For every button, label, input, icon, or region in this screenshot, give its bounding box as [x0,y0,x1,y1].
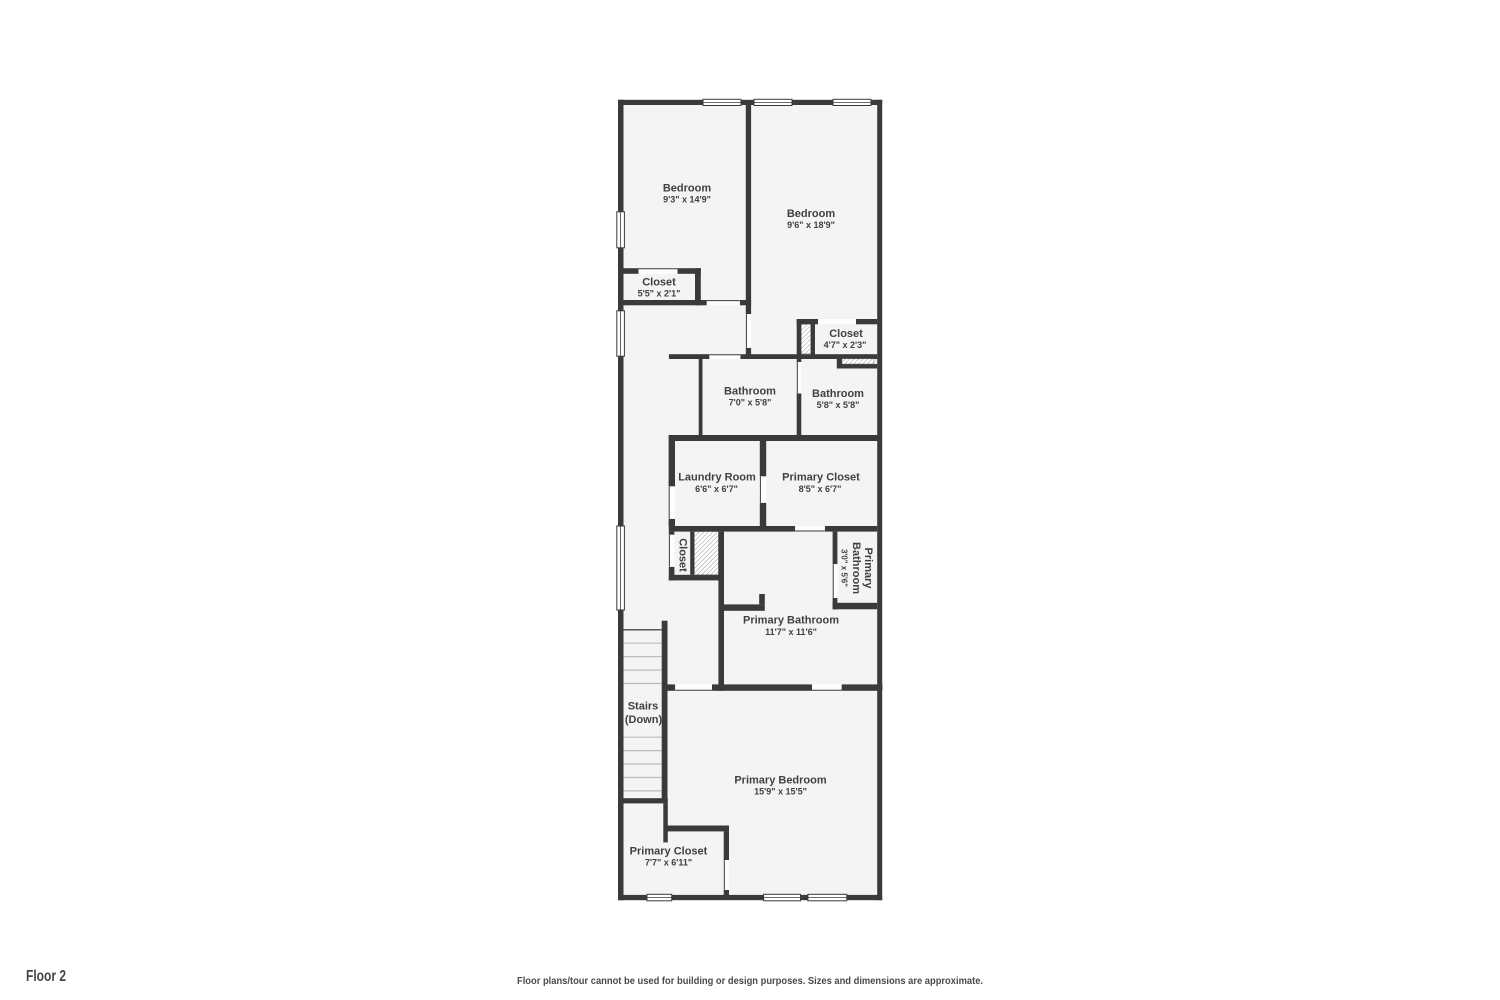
svg-text:Bathroom: Bathroom [724,386,776,398]
svg-text:Bathroom: Bathroom [812,388,864,400]
svg-text:9'6" x 18'9": 9'6" x 18'9" [787,220,835,230]
svg-text:4'7" x 2'3": 4'7" x 2'3" [824,340,867,350]
svg-text:Primary Closet: Primary Closet [630,846,708,858]
svg-text:Primary: Primary [862,548,874,590]
svg-text:Primary Bathroom: Primary Bathroom [743,615,839,627]
svg-text:(Down): (Down) [625,714,663,726]
svg-text:15'9" x 15'5": 15'9" x 15'5" [754,787,807,797]
svg-text:Closet: Closet [642,277,676,289]
svg-text:7'7" x 6'11": 7'7" x 6'11" [645,858,692,868]
svg-text:Stairs: Stairs [628,701,659,713]
svg-text:Closet: Closet [829,328,863,340]
svg-text:6'6" x 6'7": 6'6" x 6'7" [695,484,738,494]
svg-text:Bedroom: Bedroom [663,183,712,195]
svg-text:9'3" x 14'9": 9'3" x 14'9" [663,195,711,205]
svg-text:Floor 2: Floor 2 [26,968,66,985]
svg-text:8'5" x 6'7": 8'5" x 6'7" [799,484,842,494]
svg-text:Laundry Room: Laundry Room [678,472,756,484]
svg-text:Floor plans/tour cannot be use: Floor plans/tour cannot be used for buil… [517,975,983,987]
svg-text:Primary Closet: Primary Closet [782,472,860,484]
svg-text:Bedroom: Bedroom [787,208,836,220]
svg-text:7'0" x 5'8": 7'0" x 5'8" [729,398,772,408]
svg-text:Primary Bedroom: Primary Bedroom [734,775,827,787]
svg-text:Closet: Closet [677,538,689,572]
svg-text:3'0" x 5'6": 3'0" x 5'6" [840,549,849,587]
svg-text:5'5" x 2'1": 5'5" x 2'1" [638,289,681,299]
svg-text:5'8" x 5'8": 5'8" x 5'8" [817,400,860,410]
svg-text:Bathroom: Bathroom [850,542,862,594]
svg-text:11'7" x 11'6": 11'7" x 11'6" [765,627,817,637]
